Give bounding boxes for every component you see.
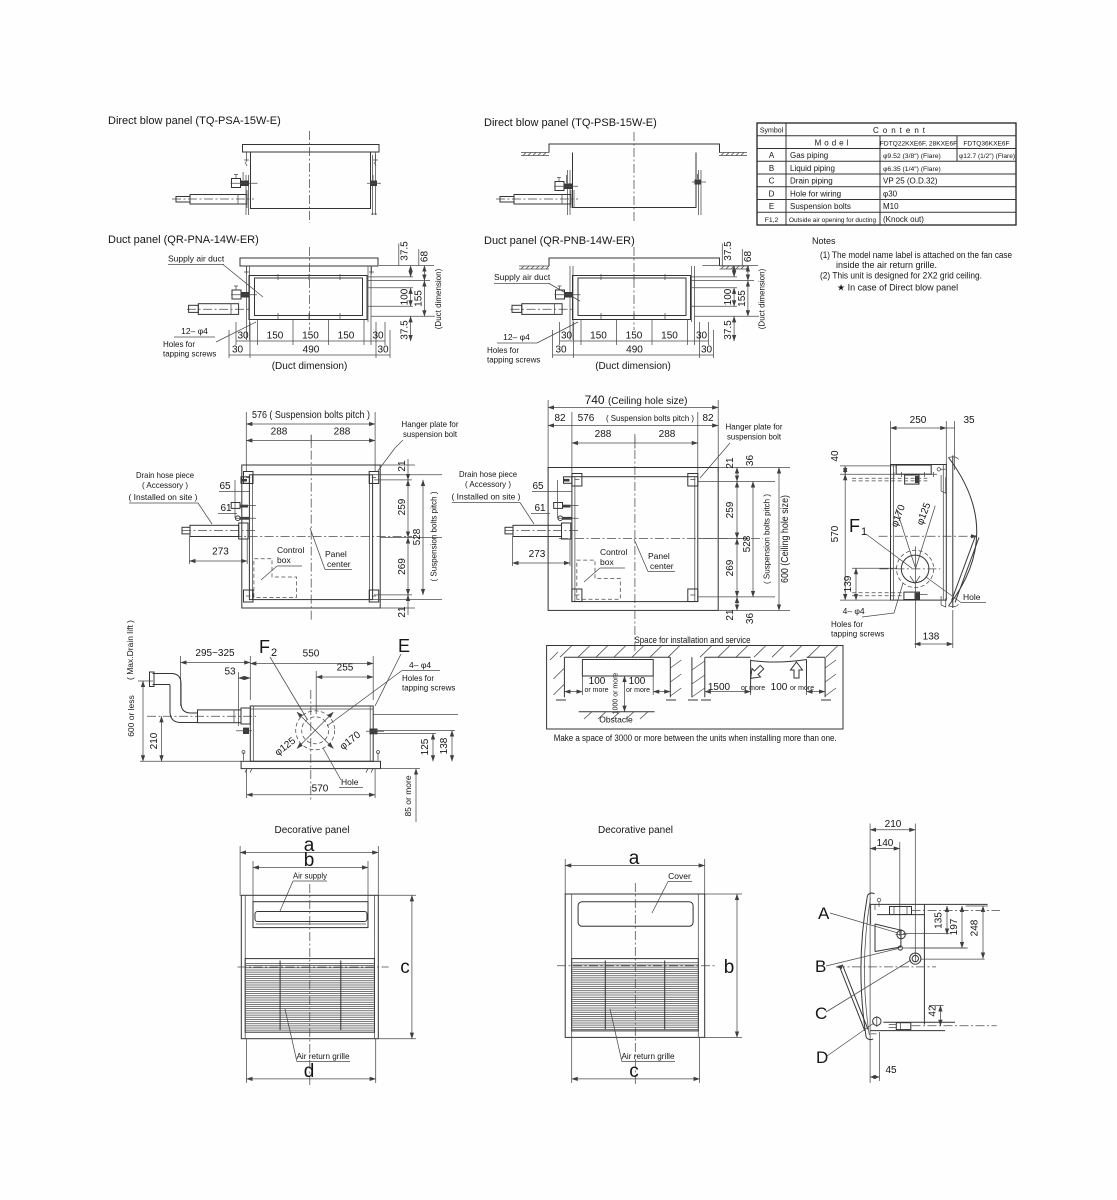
svg-text:Hanger plate for: Hanger plate for [402, 419, 459, 429]
svg-text:53: 53 [224, 667, 236, 678]
svg-text:197: 197 [949, 918, 960, 935]
svg-text:42: 42 [928, 1005, 939, 1017]
svg-text:D: D [816, 1048, 828, 1067]
svg-text:21: 21 [725, 609, 736, 621]
svg-text:Suspension bolts: Suspension bolts [790, 202, 851, 211]
svg-text:tapping screws: tapping screws [831, 630, 884, 639]
svg-text:Panel: Panel [325, 549, 347, 559]
svg-text:61: 61 [534, 503, 546, 514]
svg-text:(Duct dimension): (Duct dimension) [595, 361, 671, 372]
svg-text:1000 or more: 1000 or more [613, 673, 620, 715]
svg-text:Decorative panel: Decorative panel [598, 825, 673, 836]
svg-text:155: 155 [414, 290, 425, 307]
svg-text:30: 30 [237, 331, 249, 342]
svg-text:150: 150 [267, 331, 284, 342]
svg-text:M10: M10 [883, 202, 899, 211]
svg-text:B: B [769, 164, 774, 173]
svg-text:( Suspension bolts pitch ): ( Suspension bolts pitch ) [762, 494, 772, 584]
svg-text:φ30: φ30 [883, 189, 898, 198]
svg-text:1: 1 [861, 526, 867, 538]
svg-text:Air return grille: Air return grille [622, 1051, 675, 1061]
svg-text:or more: or more [741, 685, 765, 692]
svg-text:40: 40 [830, 450, 841, 462]
svg-text:Notes: Notes [812, 236, 836, 246]
svg-text:138: 138 [923, 632, 940, 643]
svg-text:tapping screws: tapping screws [402, 684, 455, 693]
svg-text:E: E [769, 202, 774, 211]
svg-text:210: 210 [149, 732, 160, 749]
svg-text:68: 68 [743, 251, 754, 263]
svg-text:(Knock out): (Knock out) [883, 215, 924, 224]
svg-text:528: 528 [412, 528, 423, 545]
svg-text:A: A [769, 151, 775, 160]
svg-text:Air return grille: Air return grille [297, 1051, 350, 1061]
svg-text:135: 135 [934, 912, 945, 929]
svg-text:259: 259 [397, 498, 408, 515]
svg-text:100: 100 [723, 288, 734, 305]
svg-text:2: 2 [271, 647, 277, 659]
svg-text:150: 150 [590, 331, 607, 342]
svg-text:(2) This unit is designed for: (2) This unit is designed for 2X2 grid c… [820, 271, 982, 281]
svg-text:box: box [600, 557, 614, 567]
svg-text:Space for installation and ser: Space for installation and service [635, 635, 751, 645]
svg-text:(Duct dimension): (Duct dimension) [434, 268, 443, 329]
svg-text:F1,2: F1,2 [765, 217, 779, 224]
svg-text:(Duct dimension): (Duct dimension) [758, 268, 767, 329]
svg-text:Obstacle: Obstacle [599, 715, 633, 725]
svg-text:Hanger plate for: Hanger plate for [726, 422, 783, 432]
svg-text:82: 82 [702, 413, 714, 424]
svg-text:139: 139 [843, 575, 854, 592]
svg-text:F: F [259, 637, 270, 657]
svg-text:FDTQ22KXE6F, 28KXE6F: FDTQ22KXE6F, 28KXE6F [880, 141, 957, 148]
svg-text:30: 30 [701, 345, 713, 356]
svg-text:Control: Control [600, 547, 628, 557]
svg-text:( Installed on site ): ( Installed on site ) [452, 492, 521, 502]
svg-text:4– φ4: 4– φ4 [843, 606, 865, 616]
svg-text:35: 35 [963, 415, 975, 426]
svg-text:68: 68 [420, 251, 431, 263]
svg-text:Duct panel (QR-PNA-14W-ER): Duct panel (QR-PNA-14W-ER) [108, 234, 259, 246]
svg-text:φ6.35 (1/4″) (Flare): φ6.35 (1/4″) (Flare) [883, 166, 941, 173]
svg-text:210: 210 [885, 819, 902, 830]
svg-text:Liquid piping: Liquid piping [790, 164, 835, 173]
svg-text:box: box [277, 555, 291, 565]
svg-text:(1) The model name label is at: (1) The model name label is attached on … [820, 250, 1012, 260]
svg-text:21: 21 [397, 460, 408, 472]
svg-text:288: 288 [595, 429, 612, 440]
svg-text:Panel: Panel [648, 551, 670, 561]
svg-text:( Accessory ): ( Accessory ) [142, 480, 188, 490]
svg-text:tapping screws: tapping screws [163, 350, 216, 359]
svg-text:30: 30 [561, 331, 573, 342]
svg-text:30: 30 [232, 345, 244, 356]
svg-text:Hole: Hole [341, 777, 359, 787]
svg-text:269: 269 [725, 559, 736, 576]
svg-text:125: 125 [420, 738, 431, 755]
svg-text:248: 248 [970, 919, 981, 936]
svg-text:45: 45 [885, 1065, 897, 1076]
svg-text:36: 36 [745, 613, 756, 625]
svg-text:288: 288 [271, 427, 288, 438]
svg-text:85 or more: 85 or more [403, 775, 413, 816]
svg-text:100: 100 [771, 682, 788, 693]
svg-text:φ9.52 (3/8″) (Flare): φ9.52 (3/8″) (Flare) [883, 153, 941, 160]
svg-text:37.5: 37.5 [400, 320, 411, 340]
svg-text:Supply air duct: Supply air duct [168, 254, 225, 264]
svg-text:Holes for: Holes for [831, 620, 863, 629]
svg-text:F: F [849, 516, 860, 536]
svg-text:Model: Model [815, 139, 852, 148]
svg-text:Holes for: Holes for [402, 674, 434, 683]
svg-text:21: 21 [725, 457, 736, 469]
svg-text:570: 570 [830, 525, 841, 542]
svg-text:576 ( Suspension bolts pitch ): 576 ( Suspension bolts pitch ) [252, 410, 370, 421]
svg-text:or more: or more [584, 687, 608, 694]
svg-text:Cover: Cover [668, 871, 691, 881]
svg-text:(Duct dimension): (Duct dimension) [272, 361, 348, 372]
svg-text:A: A [818, 904, 830, 923]
svg-text:center: center [327, 559, 351, 569]
svg-text:576: 576 [578, 413, 595, 424]
svg-text:30: 30 [696, 331, 708, 342]
svg-text:FDTQ36KXE6F: FDTQ36KXE6F [963, 141, 1009, 148]
svg-text:b: b [724, 957, 735, 978]
svg-text:37.5: 37.5 [723, 241, 734, 261]
svg-text:or more: or more [790, 685, 814, 692]
svg-text:( Max.Drain lift ): ( Max.Drain lift ) [125, 620, 135, 680]
svg-text:( Installed on site ): ( Installed on site ) [129, 492, 198, 502]
svg-text:Hole for wiring: Hole for wiring [790, 189, 841, 198]
svg-text:65: 65 [532, 481, 544, 492]
svg-text:center: center [650, 561, 674, 571]
svg-text:Make a space of 3000 or more b: Make a space of 3000 or more between the… [554, 733, 837, 743]
svg-text:490: 490 [303, 345, 320, 356]
svg-text:Direct blow panel (TQ-PSB-15W-: Direct blow panel (TQ-PSB-15W-E) [484, 117, 657, 129]
svg-text:288: 288 [334, 427, 351, 438]
svg-text:273: 273 [529, 549, 546, 560]
svg-text:Holes for: Holes for [163, 340, 195, 349]
svg-text:140: 140 [877, 838, 894, 849]
svg-text:c: c [400, 957, 410, 978]
svg-text:Outside air opening for ductin: Outside air opening for ducting [789, 217, 876, 224]
svg-text:Holes for: Holes for [487, 346, 519, 355]
svg-text:Air supply: Air supply [293, 871, 328, 881]
svg-text:Duct panel (QR-PNB-14W-ER): Duct panel (QR-PNB-14W-ER) [484, 235, 635, 247]
svg-text:or more: or more [626, 687, 650, 694]
svg-text:( Suspension bolts pitch ): ( Suspension bolts pitch ) [429, 491, 439, 581]
svg-text:150: 150 [661, 331, 678, 342]
svg-text:550: 550 [303, 649, 320, 660]
svg-text:600 or less: 600 or less [126, 695, 136, 737]
svg-text:21: 21 [397, 606, 408, 618]
svg-text:Hole: Hole [963, 592, 981, 602]
svg-text:490: 490 [626, 345, 643, 356]
svg-text:30: 30 [377, 345, 389, 356]
svg-text:( Accessory ): ( Accessory ) [465, 479, 511, 489]
svg-text:61: 61 [220, 503, 232, 514]
svg-text:528: 528 [742, 535, 753, 552]
svg-text:( Suspension bolts pitch ): ( Suspension bolts pitch ) [606, 413, 694, 423]
svg-text:Control: Control [277, 545, 305, 555]
svg-text:D: D [769, 189, 775, 198]
svg-text:tapping screws: tapping screws [487, 356, 540, 365]
svg-text:30: 30 [372, 331, 384, 342]
svg-text:Drain piping: Drain piping [790, 177, 833, 186]
svg-text:37.5: 37.5 [400, 241, 411, 261]
svg-text:288: 288 [659, 429, 676, 440]
svg-text:inside the air return grille.: inside the air return grille. [836, 260, 937, 270]
svg-text:★ In case of Direct blow panel: ★ In case of Direct blow panel [837, 283, 958, 293]
svg-text:250: 250 [910, 415, 927, 426]
svg-text:259: 259 [725, 501, 736, 518]
svg-text:C: C [769, 177, 775, 186]
svg-text:295~325: 295~325 [195, 648, 235, 659]
svg-text:Drain hose piece: Drain hose piece [459, 469, 517, 479]
svg-text:30: 30 [555, 345, 567, 356]
svg-text:suspension bolt: suspension bolt [403, 429, 458, 439]
svg-text:Symbol: Symbol [760, 128, 784, 135]
svg-text:36: 36 [745, 455, 756, 467]
svg-text:4– φ4: 4– φ4 [409, 660, 431, 670]
svg-text:269: 269 [397, 558, 408, 575]
svg-text:Direct blow panel (TQ-PSA-15W-: Direct blow panel (TQ-PSA-15W-E) [108, 115, 281, 127]
svg-text:φ12.7 (1/2″) (Flare): φ12.7 (1/2″) (Flare) [959, 153, 1015, 160]
svg-text:12– φ4: 12– φ4 [181, 326, 208, 336]
svg-text:Gas piping: Gas piping [790, 151, 828, 160]
svg-text:suspension bolt: suspension bolt [727, 432, 782, 442]
svg-text:82: 82 [554, 413, 566, 424]
svg-text:138: 138 [439, 737, 450, 754]
svg-text:Drain hose piece: Drain hose piece [136, 470, 194, 480]
svg-text:273: 273 [212, 547, 229, 558]
svg-text:37.5: 37.5 [723, 320, 734, 340]
svg-text:VP 25 (O.D.32): VP 25 (O.D.32) [883, 177, 938, 186]
svg-text:Supply air duct: Supply air duct [494, 272, 551, 282]
svg-text:570: 570 [312, 784, 329, 795]
svg-text:100: 100 [589, 676, 606, 687]
svg-text:100: 100 [629, 676, 646, 687]
svg-text:65: 65 [219, 481, 231, 492]
svg-text:740 (Ceiling hole size): 740 (Ceiling hole size) [585, 393, 688, 407]
svg-text:150: 150 [626, 331, 643, 342]
svg-text:255: 255 [337, 663, 354, 674]
svg-text:E: E [398, 636, 410, 656]
svg-text:100: 100 [400, 288, 411, 305]
svg-text:Content: Content [873, 126, 929, 135]
svg-text:12– φ4: 12– φ4 [503, 332, 530, 342]
svg-text:150: 150 [302, 331, 319, 342]
svg-text:150: 150 [338, 331, 355, 342]
svg-text:155: 155 [737, 290, 748, 307]
svg-text:C: C [815, 1004, 827, 1023]
svg-text:600 (Ceiling hole size): 600 (Ceiling hole size) [780, 495, 791, 583]
svg-text:B: B [815, 957, 826, 976]
